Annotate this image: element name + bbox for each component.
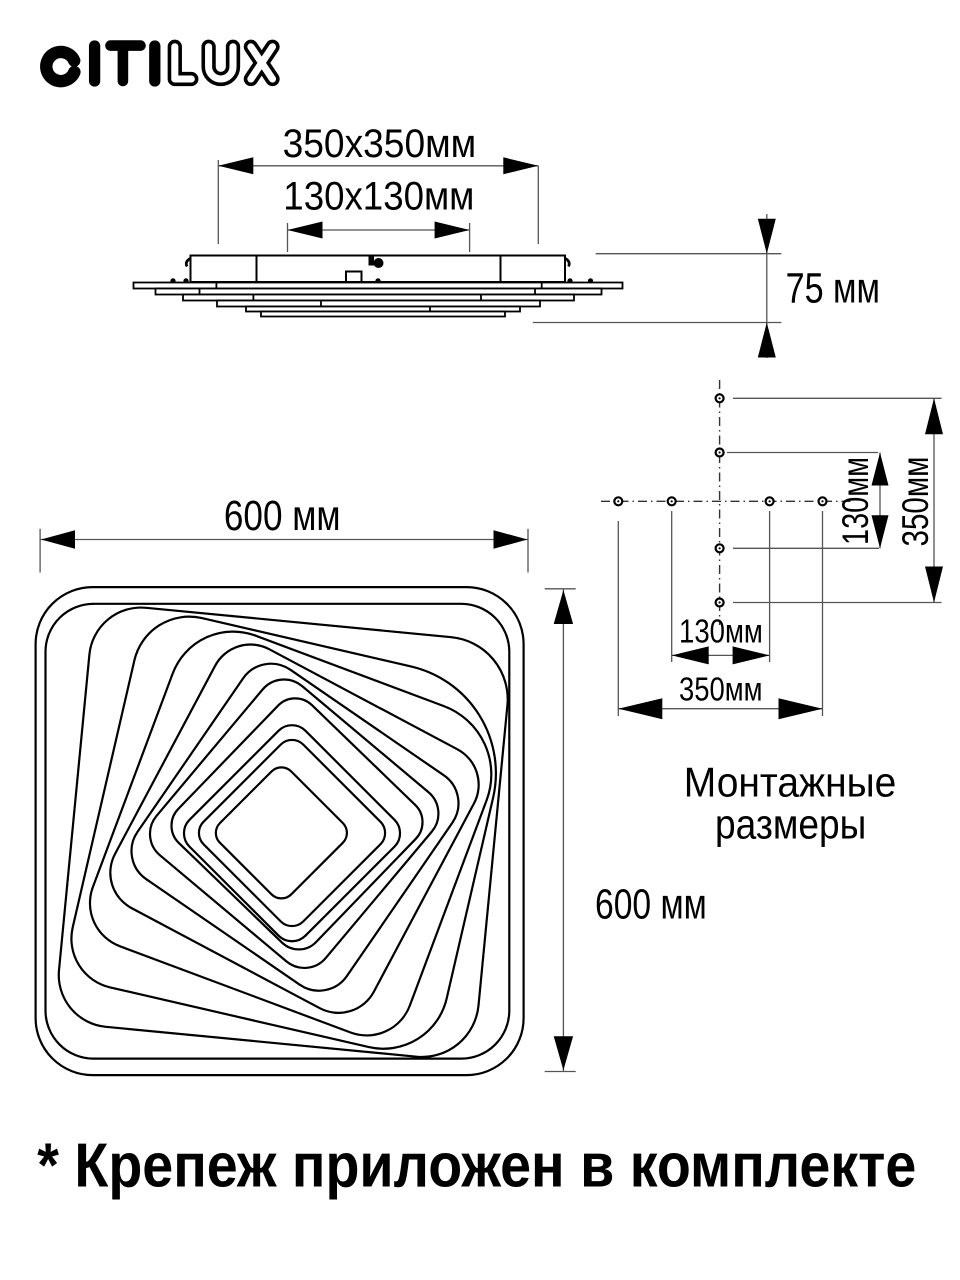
svg-text:75 мм: 75 мм bbox=[786, 265, 880, 313]
svg-text:* Крепеж приложен в комплекте: * Крепеж приложен в комплекте bbox=[37, 1131, 916, 1200]
svg-text:130мм: 130мм bbox=[834, 457, 876, 545]
svg-text:350x350мм: 350x350мм bbox=[283, 122, 477, 166]
svg-text:600 мм: 600 мм bbox=[224, 493, 341, 540]
svg-text:350мм: 350мм bbox=[894, 457, 936, 547]
svg-text:350мм: 350мм bbox=[679, 671, 763, 708]
svg-text:Монтажные: Монтажные bbox=[684, 758, 897, 805]
svg-text:600 мм: 600 мм bbox=[595, 881, 707, 928]
svg-text:130мм: 130мм bbox=[679, 612, 763, 649]
svg-text:130x130мм: 130x130мм bbox=[283, 174, 474, 218]
svg-text:размеры: размеры bbox=[715, 800, 866, 847]
